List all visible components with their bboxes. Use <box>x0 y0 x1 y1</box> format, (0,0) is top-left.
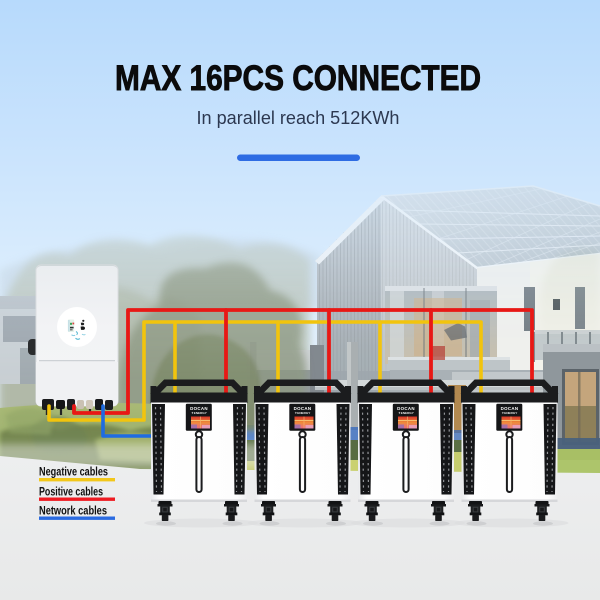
svg-text:In parallel reach 512KWh: In parallel reach 512KWh <box>197 108 400 128</box>
svg-text:Network cables: Network cables <box>39 506 107 518</box>
svg-text:MAX 16PCS CONNECTED: MAX 16PCS CONNECTED <box>115 59 481 98</box>
svg-text:Positive cables: Positive cables <box>39 487 103 499</box>
svg-text:Negative cables: Negative cables <box>39 467 108 479</box>
